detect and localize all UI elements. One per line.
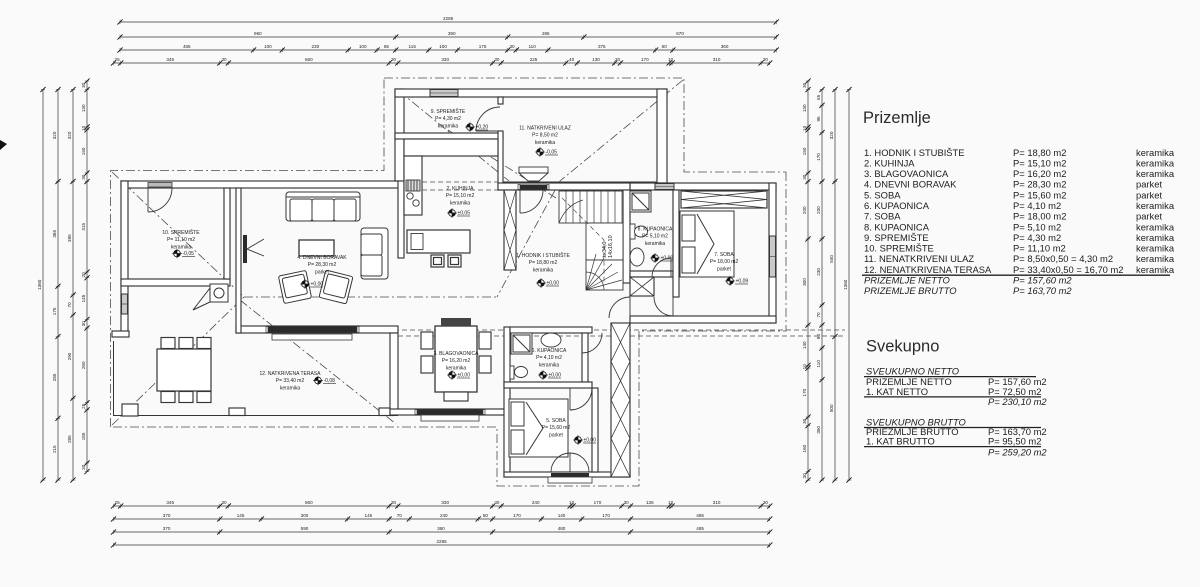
svg-text:keramika: keramika (1136, 243, 1175, 254)
svg-text:485: 485 (696, 513, 704, 518)
svg-text:20: 20 (81, 272, 86, 278)
svg-text:145: 145 (81, 294, 86, 302)
svg-text:P= 33,40x0,50 = 16,70 m2: P= 33,40x0,50 = 16,70 m2 (1013, 264, 1124, 275)
svg-text:keramika: keramika (438, 123, 459, 129)
svg-text:200: 200 (802, 206, 807, 214)
svg-text:P= 18,00 m2: P= 18,00 m2 (1013, 211, 1066, 222)
svg-text:P= 95,50 m2: P= 95,50 m2 (988, 436, 1041, 447)
svg-text:465: 465 (183, 44, 191, 49)
svg-text:345: 345 (166, 57, 174, 62)
svg-text:60: 60 (662, 44, 668, 49)
svg-text:11. NATKRIVENI ULAZ: 11. NATKRIVENI ULAZ (519, 126, 571, 132)
svg-text:5. SOBA: 5. SOBA (864, 189, 901, 200)
svg-text:parket: parket (1136, 189, 1162, 200)
svg-text:10: 10 (569, 500, 575, 505)
svg-text:PRIZEMLJE NETTO: PRIZEMLJE NETTO (864, 274, 950, 285)
svg-text:P= 259,20 m2: P= 259,20 m2 (988, 446, 1047, 457)
svg-text:130: 130 (592, 57, 600, 62)
svg-text:330: 330 (441, 57, 449, 62)
svg-text:P= 15,10 m2: P= 15,10 m2 (1013, 157, 1066, 168)
svg-text:P= 11,10 m2: P= 11,10 m2 (1013, 243, 1066, 254)
svg-text:10: 10 (668, 500, 674, 505)
svg-text:70: 70 (397, 513, 403, 518)
svg-text:170: 170 (594, 500, 602, 505)
svg-text:keramika: keramika (1136, 168, 1175, 179)
svg-text:30: 30 (763, 500, 769, 505)
svg-text:20: 20 (615, 57, 621, 62)
svg-text:4. DNEVNI BORAVAK: 4. DNEVNI BORAVAK (864, 179, 957, 190)
svg-text:150: 150 (802, 147, 807, 155)
svg-text:PRIZEMLJE BRUTTO: PRIZEMLJE BRUTTO (864, 285, 957, 296)
svg-text:480: 480 (558, 526, 566, 531)
svg-text:P= 5,10 m2: P= 5,10 m2 (642, 234, 668, 240)
svg-text:370: 370 (163, 526, 171, 531)
svg-text:670: 670 (676, 31, 684, 36)
svg-text:8. KUPAONICA: 8. KUPAONICA (638, 227, 673, 233)
svg-text:2. KUHINJA: 2. KUHINJA (447, 186, 475, 192)
svg-text:360: 360 (721, 44, 729, 49)
svg-text:200: 200 (816, 206, 821, 214)
svg-text:P= 157,60 m2: P= 157,60 m2 (1013, 274, 1072, 285)
svg-text:50: 50 (483, 513, 489, 518)
svg-text:285: 285 (52, 373, 57, 381)
svg-text:145: 145 (365, 513, 373, 518)
svg-text:30: 30 (802, 473, 807, 479)
svg-text:9. SPREMIŠTE: 9. SPREMIŠTE (864, 232, 929, 243)
svg-text:320: 320 (52, 131, 57, 139)
svg-text:P= 16,20 m2: P= 16,20 m2 (442, 358, 471, 364)
svg-text:30: 30 (81, 174, 86, 180)
svg-text:1360: 1360 (843, 279, 848, 290)
svg-text:P= 15,60 m2: P= 15,60 m2 (1013, 189, 1066, 200)
svg-text:485: 485 (696, 526, 704, 531)
svg-text:keramika: keramika (446, 365, 467, 371)
svg-text:keramika: keramika (1136, 157, 1175, 168)
svg-text:parket: parket (717, 266, 732, 272)
svg-text:10: 10 (802, 125, 807, 131)
svg-text:265: 265 (542, 31, 550, 36)
svg-text:P= 4,30 m2: P= 4,30 m2 (435, 116, 461, 122)
svg-text:P= 5,10 m2: P= 5,10 m2 (1013, 221, 1061, 232)
svg-text:30: 30 (802, 174, 807, 180)
svg-text:P= 4,10 m2: P= 4,10 m2 (1013, 200, 1061, 211)
svg-text:1. KAT BRUTTO: 1. KAT BRUTTO (866, 436, 935, 447)
svg-text:30: 30 (494, 500, 500, 505)
svg-text:30: 30 (509, 44, 515, 49)
svg-text:225: 225 (530, 57, 538, 62)
svg-text:parket: parket (549, 432, 564, 438)
svg-text:1. KAT NETTO: 1. KAT NETTO (866, 386, 928, 397)
svg-text:370: 370 (163, 513, 171, 518)
svg-text:1360: 1360 (37, 279, 42, 290)
svg-text:P= 15,10 m2: P= 15,10 m2 (446, 193, 475, 199)
svg-text:310: 310 (713, 57, 721, 62)
svg-text:360: 360 (437, 526, 445, 531)
svg-text:150: 150 (81, 147, 86, 155)
svg-text:P= 8,50x0,50 = 4,30 m2: P= 8,50x0,50 = 4,30 m2 (1013, 253, 1113, 264)
svg-text:100: 100 (359, 44, 367, 49)
svg-text:1. HODNIK I STUBIŠTE: 1. HODNIK I STUBIŠTE (864, 147, 965, 158)
svg-text:115: 115 (409, 44, 417, 49)
svg-text:30: 30 (81, 321, 86, 327)
svg-text:P= 18,80 m2: P= 18,80 m2 (529, 260, 558, 266)
svg-text:175: 175 (479, 44, 487, 49)
svg-text:70: 70 (816, 312, 821, 318)
svg-text:P= 28,30 m2: P= 28,30 m2 (1013, 179, 1066, 190)
svg-text:170: 170 (513, 513, 521, 518)
svg-text:375: 375 (598, 44, 606, 49)
svg-text:185: 185 (81, 432, 86, 440)
svg-text:±x34,0: ±x34,0 (602, 242, 608, 258)
svg-text:500: 500 (829, 404, 834, 412)
svg-text:170: 170 (802, 388, 807, 396)
svg-text:560: 560 (305, 500, 313, 505)
svg-text:P= 163,70 m2: P= 163,70 m2 (1013, 285, 1072, 296)
svg-text:4. DNEVNI BORAVAK: 4. DNEVNI BORAVAK (297, 255, 347, 261)
svg-text:365: 365 (52, 230, 57, 238)
svg-text:40: 40 (569, 57, 575, 62)
svg-text:keramika: keramika (1136, 147, 1175, 158)
svg-text:390: 390 (448, 31, 456, 36)
svg-text:30: 30 (624, 500, 630, 505)
svg-text:215: 215 (52, 445, 57, 453)
svg-text:540: 540 (829, 255, 834, 263)
svg-text:170: 170 (602, 513, 610, 518)
svg-text:5. SOBA: 5. SOBA (546, 418, 566, 424)
svg-text:175: 175 (52, 307, 57, 315)
svg-text:110: 110 (528, 44, 536, 49)
svg-text:30: 30 (391, 57, 397, 62)
svg-text:P= 16,20 m2: P= 16,20 m2 (1013, 168, 1066, 179)
svg-text:30: 30 (802, 418, 807, 424)
svg-text:140: 140 (802, 341, 807, 349)
svg-text:keramika: keramika (1136, 221, 1175, 232)
svg-text:Svekupno: Svekupno (866, 338, 939, 356)
svg-text:320: 320 (67, 131, 72, 139)
svg-text:330: 330 (441, 500, 449, 505)
svg-text:10: 10 (668, 57, 674, 62)
svg-text:240: 240 (532, 500, 540, 505)
svg-text:240: 240 (440, 513, 448, 518)
svg-text:30: 30 (81, 82, 86, 88)
svg-text:7. SOBA: 7. SOBA (714, 252, 734, 258)
svg-text:6. KUPAONICA: 6. KUPAONICA (532, 348, 567, 354)
svg-text:30: 30 (494, 57, 500, 62)
svg-text:P= 33,40 m2: P= 33,40 m2 (276, 378, 305, 384)
svg-text:30: 30 (391, 500, 397, 505)
svg-text:parket: parket (1136, 211, 1162, 222)
svg-text:keramika: keramika (280, 385, 301, 391)
svg-text:keramika: keramika (539, 362, 560, 368)
svg-text:7. SOBA: 7. SOBA (864, 211, 901, 222)
svg-text:300: 300 (301, 513, 309, 518)
svg-text:2285: 2285 (443, 16, 454, 21)
svg-text:55: 55 (816, 94, 821, 100)
svg-text:10. SPREMIŠTE: 10. SPREMIŠTE (864, 243, 934, 254)
svg-text:300: 300 (802, 278, 807, 286)
svg-text:8. KUPAONICA: 8. KUPAONICA (864, 221, 930, 232)
svg-text:keramika: keramika (1136, 232, 1175, 243)
svg-text:230: 230 (816, 268, 821, 276)
svg-text:parket: parket (315, 269, 330, 275)
svg-text:310: 310 (713, 500, 721, 505)
svg-text:P= 4,30 m2: P= 4,30 m2 (1013, 232, 1061, 243)
svg-text:140: 140 (558, 513, 566, 518)
svg-text:keramika: keramika (1136, 200, 1175, 211)
svg-text:10: 10 (81, 125, 86, 131)
svg-text:560: 560 (305, 57, 313, 62)
svg-text:145: 145 (237, 513, 245, 518)
svg-text:135: 135 (646, 500, 654, 505)
svg-text:3. BLAGOVAONICA: 3. BLAGOVAONICA (864, 168, 949, 179)
svg-text:30: 30 (763, 57, 769, 62)
svg-text:65: 65 (384, 44, 390, 49)
svg-text:100: 100 (439, 44, 447, 49)
svg-text:260: 260 (81, 361, 86, 369)
svg-text:P= 8,50 m2: P= 8,50 m2 (532, 133, 558, 139)
svg-text:70: 70 (67, 302, 72, 308)
svg-text:keramika: keramika (1136, 253, 1175, 264)
svg-text:6. KUPAONICA: 6. KUPAONICA (864, 200, 930, 211)
svg-text:30: 30 (222, 500, 228, 505)
svg-text:P= 4,10 m2: P= 4,10 m2 (536, 355, 562, 361)
svg-text:30: 30 (81, 464, 86, 470)
svg-text:30: 30 (802, 82, 807, 88)
svg-text:2285: 2285 (437, 539, 448, 544)
svg-text:3. BLAGOVAONICA: 3. BLAGOVAONICA (434, 351, 480, 357)
svg-text:395: 395 (67, 234, 72, 242)
svg-text:12. NATKRIVENA TERASA: 12. NATKRIVENA TERASA (260, 371, 322, 377)
svg-text:11. NENATKRIVENI ULAZ: 11. NENATKRIVENI ULAZ (864, 253, 974, 264)
svg-text:285: 285 (67, 435, 72, 443)
svg-text:10. SPREMIŠTE: 10. SPREMIŠTE (162, 229, 200, 236)
svg-text:290: 290 (67, 352, 72, 360)
svg-text:30: 30 (222, 57, 228, 62)
svg-text:25: 25 (115, 57, 121, 62)
svg-text:14x16,10: 14x16,10 (608, 235, 614, 258)
svg-text:keramika: keramika (1136, 264, 1175, 275)
svg-text:keramika: keramika (450, 200, 471, 206)
svg-text:345: 345 (166, 500, 174, 505)
svg-text:keramika: keramika (645, 241, 666, 247)
svg-text:P= 15,60 m2: P= 15,60 m2 (542, 425, 571, 431)
svg-text:keramika: keramika (533, 267, 554, 273)
svg-text:170: 170 (816, 153, 821, 161)
svg-text:2. KUHINJA: 2. KUHINJA (864, 157, 915, 168)
svg-text:230: 230 (311, 44, 319, 49)
svg-text:315: 315 (81, 222, 86, 230)
svg-text:1. HODNIK I STUBIŠTE: 1. HODNIK I STUBIŠTE (516, 252, 570, 259)
svg-text:100: 100 (264, 44, 272, 49)
svg-text:110: 110 (816, 360, 821, 368)
svg-text:Prizemlje: Prizemlje (863, 109, 931, 127)
svg-text:95: 95 (816, 116, 821, 122)
svg-text:10: 10 (802, 364, 807, 370)
svg-text:160: 160 (802, 444, 807, 452)
svg-text:P= 18,00 m2: P= 18,00 m2 (710, 259, 739, 265)
svg-text:P= 18,80 m2: P= 18,80 m2 (1013, 147, 1066, 158)
svg-text:350: 350 (816, 426, 821, 434)
svg-text:parket: parket (1136, 179, 1162, 190)
svg-text:25: 25 (81, 403, 86, 409)
svg-text:keramika: keramika (535, 140, 556, 146)
svg-text:170: 170 (641, 57, 649, 62)
svg-text:12. NENATKRIVENA TERASA: 12. NENATKRIVENA TERASA (864, 264, 992, 275)
svg-text:960: 960 (254, 31, 262, 36)
svg-text:130: 130 (802, 104, 807, 112)
svg-text:590: 590 (301, 526, 309, 531)
svg-text:P= 28,30 m2: P= 28,30 m2 (308, 262, 337, 268)
svg-text:130: 130 (81, 104, 86, 112)
svg-text:320: 320 (829, 131, 834, 139)
svg-text:keramika: keramika (171, 244, 192, 250)
svg-text:25: 25 (115, 500, 121, 505)
svg-text:9. SPREMIŠTE: 9. SPREMIŠTE (431, 108, 466, 115)
svg-text:P= 11,10 m2: P= 11,10 m2 (167, 237, 195, 243)
